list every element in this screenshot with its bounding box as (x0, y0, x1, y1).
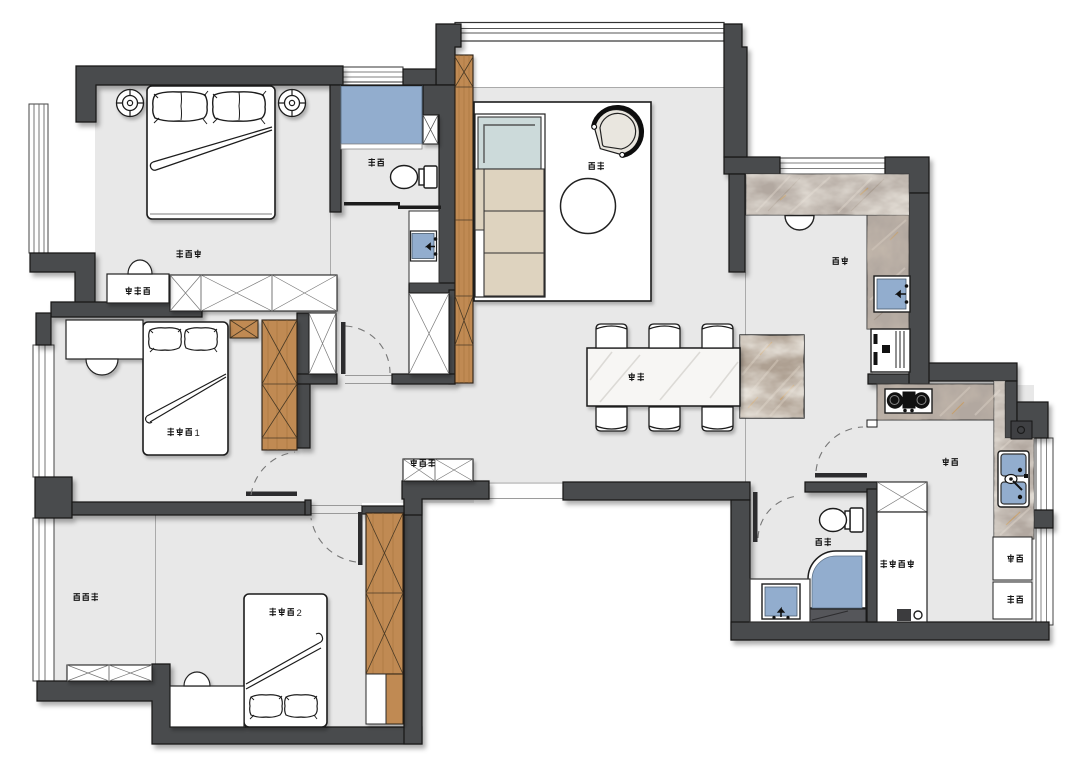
svg-text:2: 2 (297, 608, 302, 619)
svg-text:1: 1 (195, 428, 200, 439)
